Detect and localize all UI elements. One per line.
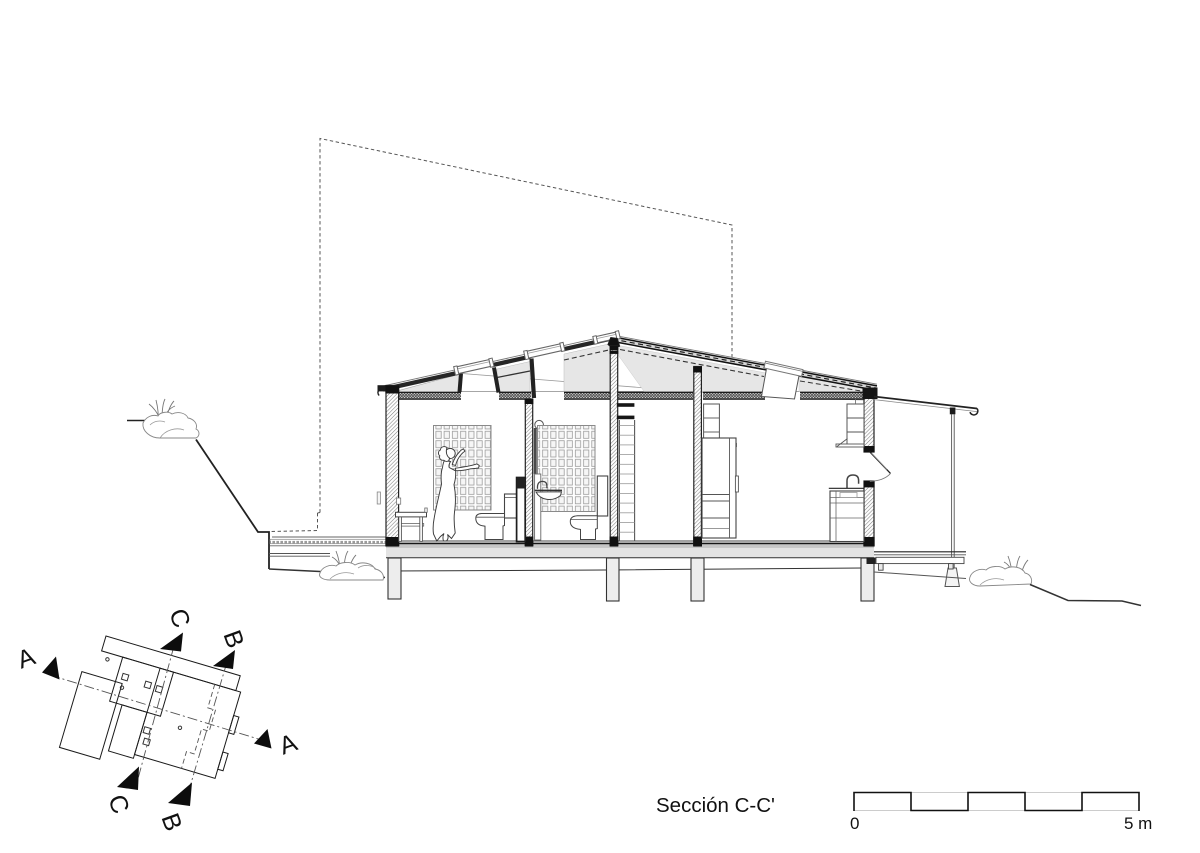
svg-text:Sección C-C': Sección C-C' [656, 794, 775, 817]
svg-text:5 m: 5 m [1124, 814, 1152, 833]
svg-text:0: 0 [850, 814, 859, 833]
